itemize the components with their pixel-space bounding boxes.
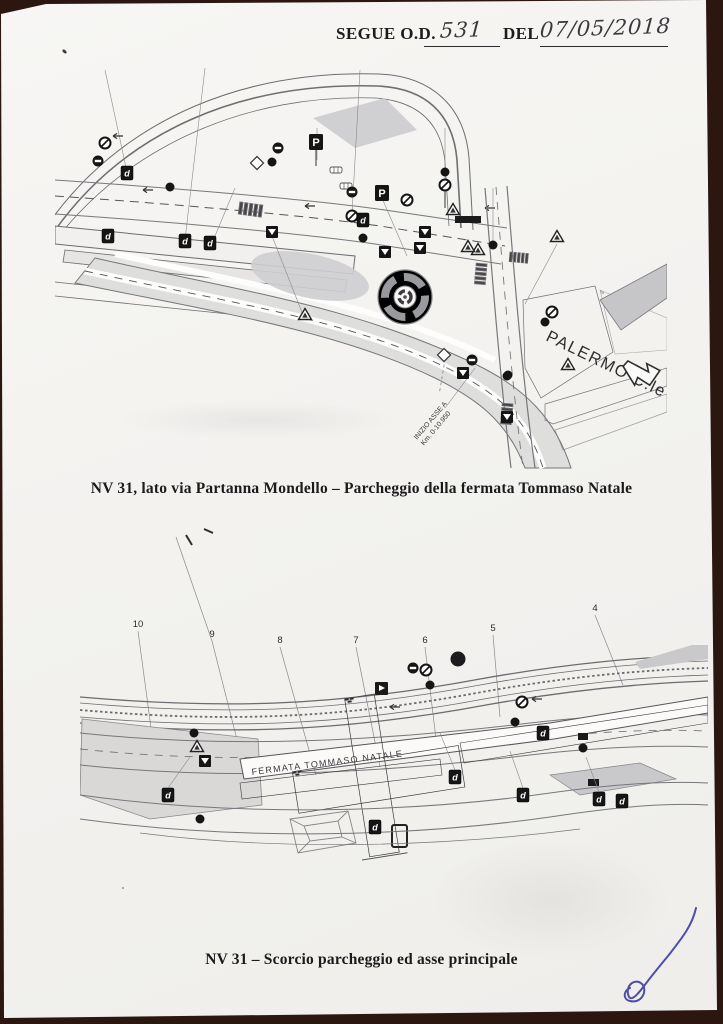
callout-7: 7 — [353, 635, 358, 646]
no-entry-sign — [517, 697, 528, 708]
d-sign — [357, 213, 369, 227]
d-sign — [204, 236, 216, 250]
no-stop-sign — [273, 143, 284, 154]
dot-sign — [511, 718, 520, 727]
yield-sign — [266, 226, 278, 238]
od-number-field: 531 — [424, 18, 500, 47]
d-sign — [369, 820, 381, 834]
dot-sign — [541, 318, 550, 327]
no-stop-sign — [408, 663, 419, 674]
signature-ink-mark — [608, 882, 718, 1022]
d-sign — [162, 788, 174, 802]
car-symbol — [330, 167, 342, 173]
roundabout — [378, 270, 432, 324]
callout-4: 4 — [592, 603, 597, 614]
no-entry-sign — [347, 211, 358, 222]
yield-sign — [379, 246, 391, 258]
paper-sheet: SEGUE O.D. 531 DEL 07/05/2018 — [0, 0, 723, 1024]
panel-sign — [588, 779, 599, 786]
dot-sign — [441, 168, 450, 177]
scan-speck — [122, 887, 124, 889]
warning-sign — [462, 241, 475, 252]
no-stop-sign — [93, 156, 104, 167]
d-sign — [537, 726, 549, 740]
dot-sign — [166, 183, 175, 192]
del-label: DEL — [503, 24, 539, 44]
plan-drawing-parcheggio: d P — [55, 68, 667, 470]
dot-sign — [196, 815, 205, 824]
round-sign — [451, 652, 466, 667]
dot-sign — [268, 158, 277, 167]
parking-sign — [375, 185, 389, 201]
axis-road — [75, 242, 571, 468]
yield-sign — [419, 226, 431, 238]
callout-5: 5 — [490, 623, 495, 634]
scanned-page-background: { "header": { "segue_label": "SEGUE O.D.… — [0, 0, 723, 1024]
no-entry-sign — [547, 307, 558, 318]
no-entry-sign — [440, 180, 451, 191]
date-handwritten: 07/05/2018 — [539, 14, 672, 43]
dot-sign — [190, 729, 199, 738]
dot-sign — [579, 744, 588, 753]
yield-sign — [457, 367, 469, 379]
no-entry-sign — [421, 665, 432, 676]
panel-sign — [578, 733, 588, 740]
d-sign — [616, 794, 628, 808]
callout-9: 9 — [209, 629, 214, 640]
od-number-handwritten: 531 — [440, 17, 485, 43]
header: SEGUE O.D. 531 DEL 07/05/2018 — [336, 24, 696, 58]
yield-sign — [414, 242, 426, 254]
d-sign — [102, 229, 114, 243]
panel-sign — [455, 216, 481, 223]
no-entry-sign — [402, 195, 413, 206]
dot-sign — [503, 372, 512, 381]
d-sign — [517, 788, 529, 802]
d-sign — [121, 166, 133, 180]
d-sign — [593, 792, 605, 806]
date-field: 07/05/2018 — [540, 16, 668, 47]
stray-marks — [186, 529, 213, 545]
callout-10: 10 — [133, 619, 144, 630]
scan-speck — [62, 49, 68, 55]
no-stop-sign — [467, 355, 478, 366]
callout-6: 6 — [422, 635, 427, 646]
parking-sign — [309, 134, 323, 150]
d-sign — [179, 234, 191, 248]
dot-sign — [359, 234, 368, 243]
segue-od-label: SEGUE O.D. — [336, 24, 436, 44]
no-entry-sign — [100, 138, 111, 149]
dot-sign — [426, 681, 435, 690]
yield-sign — [501, 411, 513, 423]
d-sign — [449, 770, 461, 784]
dot-sign — [489, 241, 498, 250]
callout-8: 8 — [277, 635, 282, 646]
yield-sign — [199, 755, 211, 767]
no-stop-sign — [347, 187, 358, 198]
pavilion-roof — [290, 811, 356, 853]
caption-first-drawing: NV 31, lato via Partanna Mondello – Parc… — [0, 480, 723, 498]
